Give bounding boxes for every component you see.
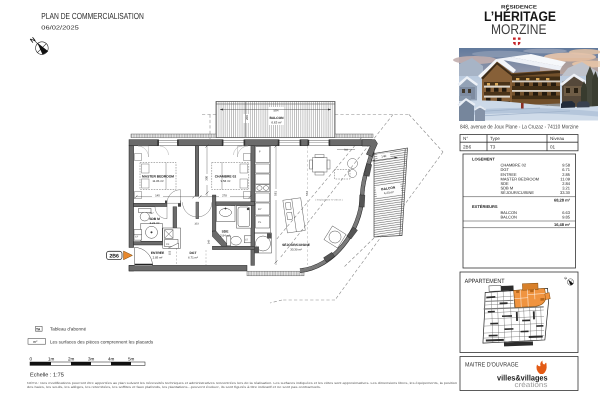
- svg-text:F: F: [259, 150, 261, 154]
- svg-text:Type: Type: [490, 136, 500, 141]
- svg-text:140: 140: [381, 154, 387, 159]
- svg-text:( Emplacement TV 240 cm ): ( Emplacement TV 240 cm ): [315, 199, 342, 202]
- svg-text:EXTÉRIEURS: EXTÉRIEURS: [472, 204, 498, 209]
- svg-text:300: 300: [205, 175, 209, 180]
- svg-text:DY: DY: [258, 208, 262, 211]
- svg-text:DGT: DGT: [190, 251, 197, 255]
- svg-text:103: 103: [194, 223, 199, 226]
- svg-text:N: N: [563, 276, 568, 281]
- svg-text:BALCON: BALCON: [269, 116, 284, 120]
- svg-text:MAITRE D'OUVRAGE: MAITRE D'OUVRAGE: [465, 362, 518, 369]
- svg-text:9.85: 9.85: [562, 215, 571, 220]
- svg-text:240: 240: [208, 239, 211, 244]
- svg-text:N°: N°: [463, 136, 468, 141]
- svg-text:145: 145: [155, 193, 160, 197]
- svg-text:LOGEMENT: LOGEMENT: [472, 157, 495, 162]
- svg-text:ENTRÉE: ENTRÉE: [151, 251, 165, 255]
- svg-text:des baies, les seuils, les all: des baies, les seuils, les allèges, les …: [27, 385, 321, 389]
- svg-text:01: 01: [550, 144, 556, 149]
- svg-text:06/02/2025: 06/02/2025: [41, 24, 79, 31]
- svg-text:MORZINE: MORZINE: [491, 21, 547, 37]
- svg-text:2B6: 2B6: [463, 144, 472, 149]
- svg-text:CHAMBRE 02: CHAMBRE 02: [215, 175, 237, 179]
- svg-text:CE: CE: [166, 243, 170, 246]
- svg-text:11.86 m²: 11.86 m²: [152, 179, 163, 183]
- svg-text:NOTA : Des modifications pourr: NOTA : Des modifications pourront être a…: [27, 381, 457, 385]
- svg-text:N: N: [29, 36, 37, 45]
- svg-text:4m: 4m: [108, 357, 115, 362]
- svg-text:T3: T3: [490, 144, 496, 149]
- svg-text:0: 0: [30, 357, 33, 362]
- svg-text:68,28 m²: 68,28 m²: [554, 198, 571, 203]
- svg-text:2B6: 2B6: [109, 254, 119, 260]
- svg-text:APPARTEMENT: APPARTEMENT: [465, 278, 505, 285]
- svg-text:237: 237: [149, 212, 154, 215]
- svg-text:584: 584: [273, 109, 278, 113]
- svg-text:583: 583: [344, 148, 349, 151]
- svg-text:PL: PL: [258, 221, 262, 224]
- svg-text:PLAN DE COMMERCIALISATION: PLAN DE COMMERCIALISATION: [41, 11, 144, 21]
- svg-text:6.71 m²: 6.71 m²: [188, 256, 198, 260]
- svg-text:créations: créations: [515, 380, 548, 389]
- svg-text:33.30 m²: 33.30 m²: [290, 248, 301, 252]
- svg-text:TA: TA: [36, 327, 41, 331]
- svg-text:3m: 3m: [88, 357, 95, 362]
- svg-text:33.30: 33.30: [560, 190, 571, 195]
- svg-text:563: 563: [305, 191, 309, 196]
- svg-text:1m: 1m: [48, 357, 55, 362]
- svg-text:581: 581: [274, 191, 278, 196]
- svg-text:278: 278: [222, 193, 227, 197]
- svg-text:16,48 m²: 16,48 m²: [554, 222, 571, 227]
- svg-text:848, avenue de Joux Plane - La: 848, avenue de Joux Plane - La Cruzaz - …: [460, 123, 579, 130]
- svg-text:Echelle : 1:75: Echelle : 1:75: [30, 372, 64, 379]
- svg-text:MASTER BEDROOM: MASTER BEDROOM: [142, 175, 174, 179]
- svg-text:Niveau: Niveau: [550, 136, 565, 141]
- svg-text:153: 153: [169, 250, 172, 255]
- svg-text:6.63 m²: 6.63 m²: [271, 121, 281, 125]
- svg-text:5m: 5m: [128, 357, 135, 362]
- svg-text:2.84 m²: 2.84 m²: [220, 234, 230, 238]
- svg-text:9.58 m²: 9.58 m²: [221, 179, 231, 183]
- svg-text:Tableau d'abonné: Tableau d'abonné: [50, 327, 87, 332]
- svg-text:ST: ST: [245, 239, 249, 242]
- svg-text:2m: 2m: [68, 357, 75, 362]
- svg-text:2.85 m²: 2.85 m²: [153, 256, 163, 260]
- svg-text:CF: CF: [135, 236, 139, 239]
- svg-text:2.21 m²: 2.21 m²: [150, 221, 160, 225]
- svg-text:BALCON: BALCON: [501, 215, 518, 220]
- svg-text:Les surfaces des pièces compre: Les surfaces des pièces comprennent les …: [50, 339, 154, 344]
- svg-text:SÉJOUR/CUISINE: SÉJOUR/CUISINE: [282, 243, 311, 247]
- svg-text:SÉJOUR/CUISINE: SÉJOUR/CUISINE: [501, 190, 535, 195]
